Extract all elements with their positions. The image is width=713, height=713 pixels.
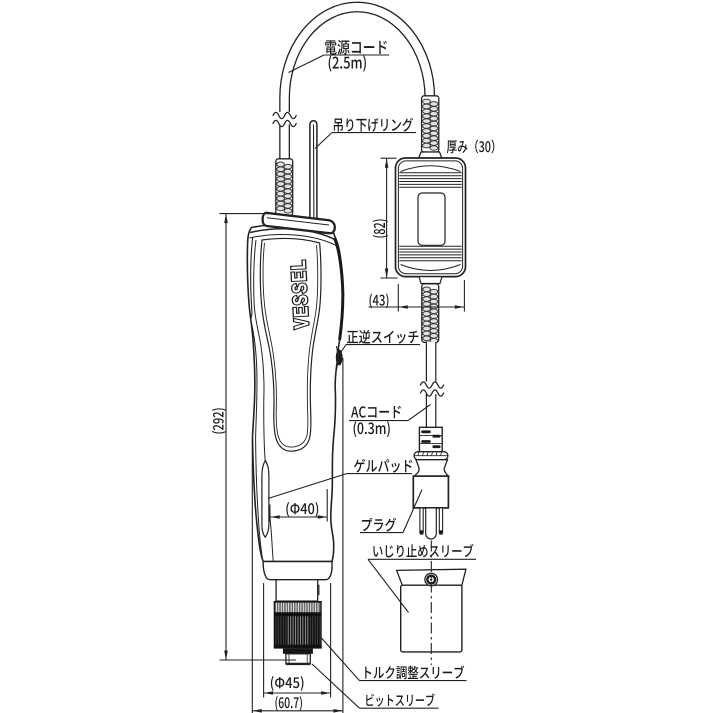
- svg-text:VESSEL: VESSEL: [287, 258, 313, 329]
